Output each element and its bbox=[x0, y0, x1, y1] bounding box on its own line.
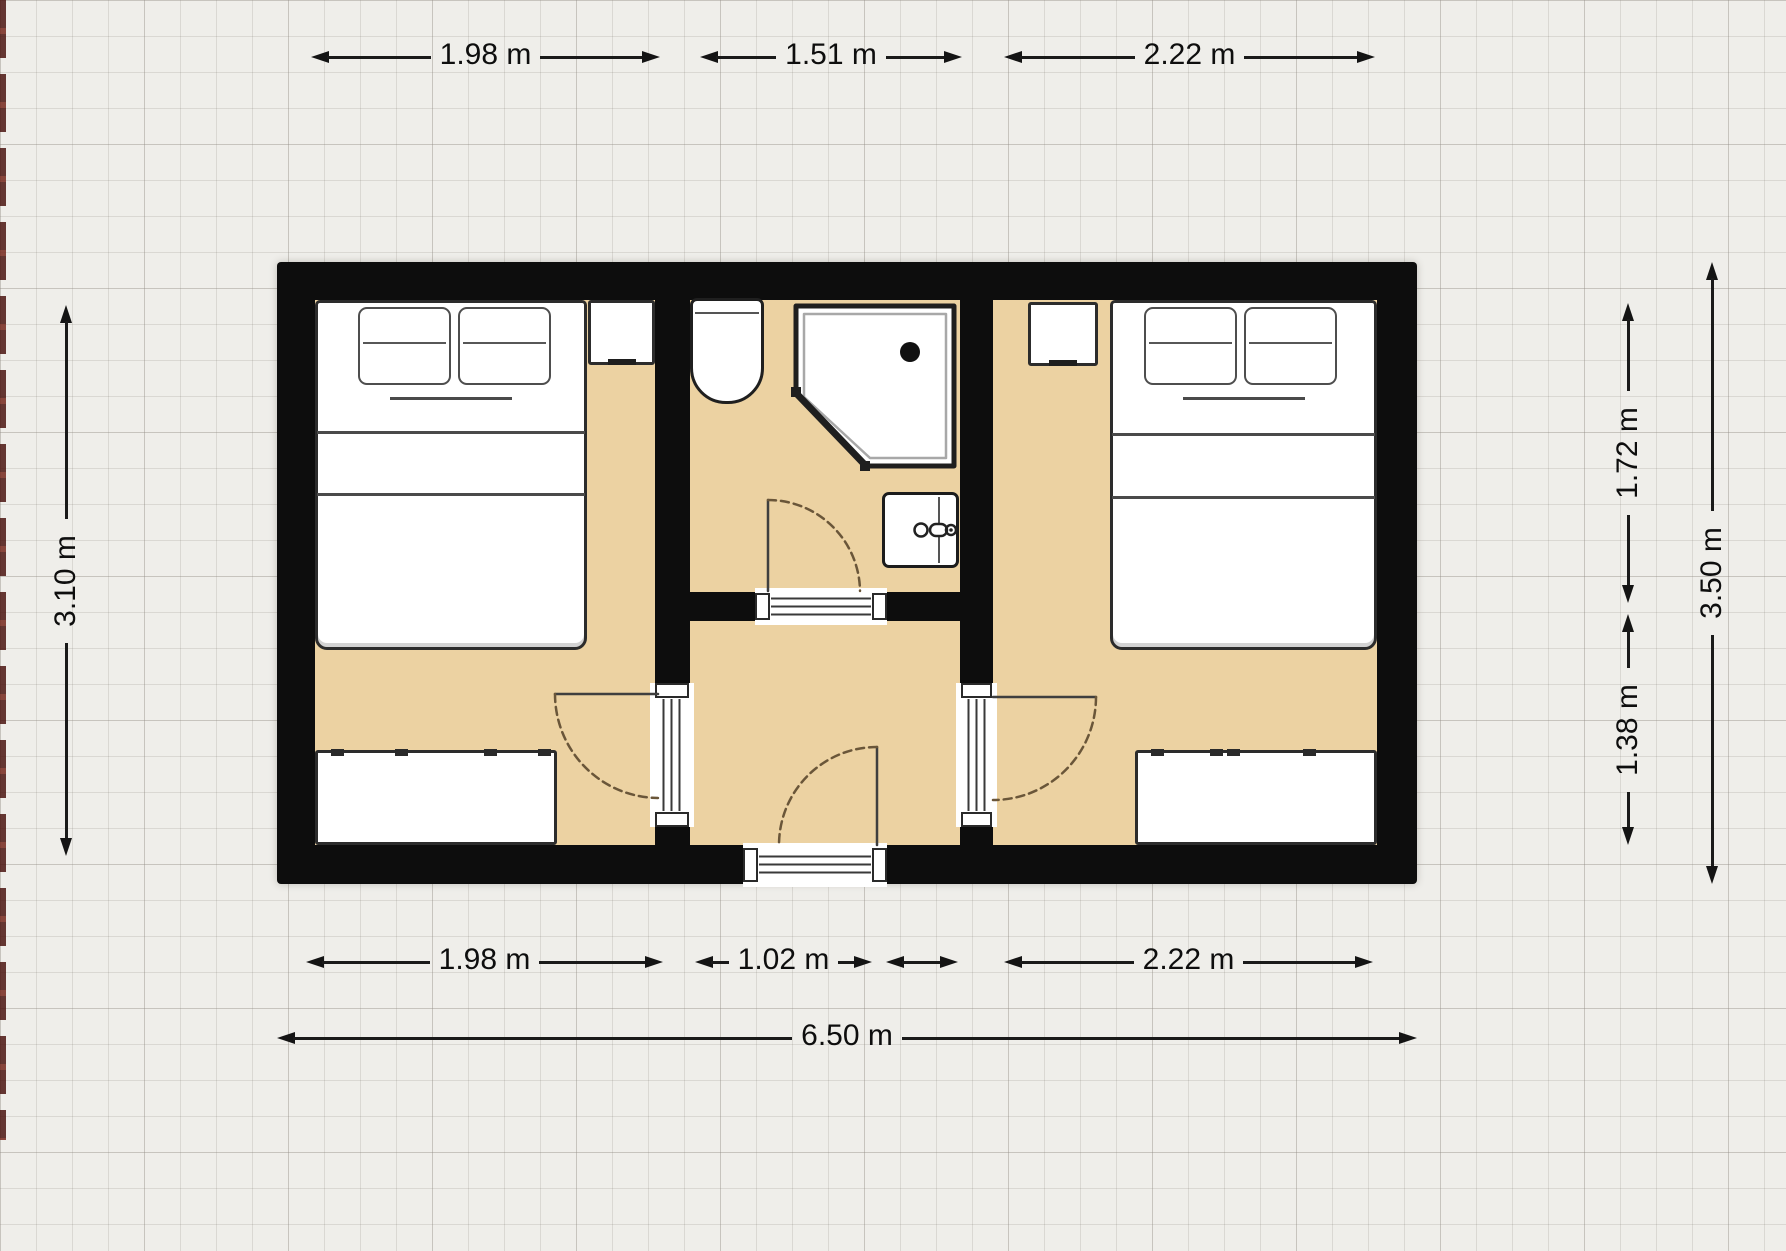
arrow-down-icon bbox=[1706, 866, 1718, 884]
dimension-right-total-height: 3.50 m bbox=[1695, 262, 1729, 884]
duvet-fold-line bbox=[1112, 433, 1375, 436]
pillow-icon bbox=[358, 307, 451, 385]
floor-plan-canvas: 1.98 m 1.51 m 2.22 m 1.98 m 1.02 m 2.22 … bbox=[0, 0, 1786, 1251]
door-jamb bbox=[961, 812, 992, 827]
door-threshold-bedroom-right bbox=[956, 683, 997, 827]
bed-stitch-line bbox=[390, 397, 512, 400]
wardrobe-handle bbox=[1151, 749, 1164, 756]
door-slab bbox=[663, 699, 682, 811]
door-slab bbox=[771, 597, 871, 616]
door-threshold-bathroom bbox=[755, 588, 887, 625]
dimension-right-hallway-depth: 1.38 m bbox=[1611, 614, 1645, 845]
pillow-icon bbox=[1144, 307, 1237, 385]
dimension-label: 3.10 m bbox=[49, 535, 83, 627]
double-bed-icon bbox=[1110, 300, 1377, 650]
duvet-fold-line bbox=[317, 431, 585, 434]
arrow-right-icon bbox=[642, 51, 660, 63]
dimension-label: 2.22 m bbox=[1132, 943, 1246, 977]
washbasin-icon bbox=[882, 492, 959, 568]
dimension-right-bathroom-depth: 1.72 m bbox=[1611, 303, 1645, 603]
arrow-right-icon bbox=[1399, 1032, 1417, 1044]
dimension-total-width: 6.50 m bbox=[277, 1021, 1417, 1055]
dimension-label: 1.98 m bbox=[428, 943, 542, 977]
dimension-label: 1.51 m bbox=[774, 38, 888, 72]
wardrobe-icon bbox=[1135, 750, 1377, 845]
duvet-fold-line bbox=[1112, 496, 1375, 499]
arrow-right-icon bbox=[1357, 51, 1375, 63]
dimension-top-bathroom: 1.51 m bbox=[700, 40, 962, 74]
door-slab bbox=[759, 856, 871, 875]
wardrobe-handle bbox=[1303, 749, 1316, 756]
dimension-label: 2.22 m bbox=[1133, 38, 1247, 72]
door-threshold-entrance bbox=[743, 843, 887, 887]
door-jamb bbox=[872, 593, 887, 620]
dimension-bottom-bedroom-right: 2.22 m bbox=[1004, 945, 1373, 979]
dimension-top-bedroom-left: 1.98 m bbox=[311, 40, 660, 74]
door-jamb bbox=[655, 683, 689, 698]
door-jamb bbox=[755, 593, 770, 620]
bed-stitch-line bbox=[1183, 397, 1305, 400]
door-jamb bbox=[655, 812, 689, 827]
nightstand-icon bbox=[1028, 302, 1098, 366]
dimension-label: 1.02 m bbox=[727, 943, 841, 977]
door-slab bbox=[967, 699, 986, 811]
double-bed-icon bbox=[315, 300, 587, 650]
door-threshold-bedroom-left bbox=[650, 683, 694, 827]
wardrobe-handle bbox=[538, 749, 551, 756]
toilet-icon bbox=[690, 298, 764, 404]
dimension-label: 1.98 m bbox=[429, 38, 543, 72]
arrow-right-icon bbox=[940, 956, 958, 968]
door-jamb bbox=[743, 848, 758, 882]
arrow-down-icon bbox=[1622, 585, 1634, 603]
door-jamb bbox=[961, 683, 992, 698]
dimension-left-interior-height: 3.10 m bbox=[49, 305, 83, 856]
wardrobe-handle bbox=[1210, 749, 1223, 756]
wardrobe-handle bbox=[484, 749, 497, 756]
arrow-right-icon bbox=[1355, 956, 1373, 968]
room-floor-hallway bbox=[690, 621, 960, 845]
dimension-label: 3.50 m bbox=[1695, 527, 1729, 619]
dimension-label: 1.72 m bbox=[1611, 407, 1645, 499]
dimension-label: 6.50 m bbox=[790, 1019, 904, 1053]
arrow-down-icon bbox=[60, 838, 72, 856]
arrow-right-icon bbox=[645, 956, 663, 968]
dimension-top-bedroom-right: 2.22 m bbox=[1004, 40, 1375, 74]
dimension-bottom-small-unlabeled bbox=[886, 945, 958, 979]
arrow-right-icon bbox=[944, 51, 962, 63]
arrow-down-icon bbox=[1622, 827, 1634, 845]
duvet-fold-line bbox=[317, 493, 585, 496]
nightstand-icon bbox=[588, 300, 655, 365]
door-jamb bbox=[872, 848, 887, 882]
screen-edge-artifact bbox=[0, 0, 6, 1140]
dimension-bottom-bedroom-left: 1.98 m bbox=[306, 945, 663, 979]
pillow-icon bbox=[1244, 307, 1337, 385]
dimension-label: 1.38 m bbox=[1611, 684, 1645, 776]
wardrobe-handle bbox=[1227, 749, 1240, 756]
wardrobe-handle bbox=[395, 749, 408, 756]
wardrobe-handle bbox=[331, 749, 344, 756]
arrow-right-icon bbox=[854, 956, 872, 968]
wardrobe-icon bbox=[315, 750, 557, 845]
dimension-bottom-hallway: 1.02 m bbox=[695, 945, 872, 979]
pillow-icon bbox=[458, 307, 551, 385]
